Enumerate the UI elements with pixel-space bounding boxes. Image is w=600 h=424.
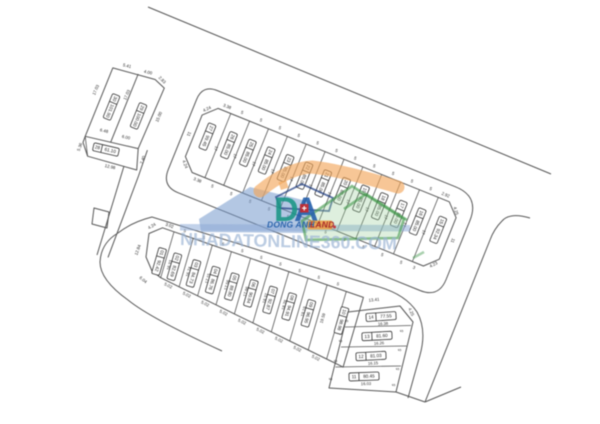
svg-text:15.00: 15.00 bbox=[154, 110, 163, 122]
svg-text:17.03: 17.03 bbox=[91, 83, 100, 95]
svg-text:3.38: 3.38 bbox=[222, 102, 232, 110]
svg-text:19.59: 19.59 bbox=[319, 312, 327, 324]
svg-text:11: 11 bbox=[450, 238, 457, 245]
svg-text:16.03: 16.03 bbox=[361, 381, 372, 386]
svg-text:5.02: 5.02 bbox=[256, 327, 266, 335]
svg-text:4.23: 4.23 bbox=[429, 260, 439, 269]
svg-text:5.02: 5.02 bbox=[237, 318, 247, 326]
svg-text:5: 5 bbox=[410, 178, 415, 184]
svg-text:5.36: 5.36 bbox=[76, 142, 84, 152]
svg-text:5: 5 bbox=[395, 367, 401, 371]
svg-text:5.02: 5.02 bbox=[219, 308, 229, 316]
svg-text:5.02: 5.02 bbox=[182, 290, 192, 298]
svg-text:4.24: 4.24 bbox=[147, 221, 157, 230]
svg-text:5: 5 bbox=[399, 260, 404, 266]
svg-text:4.00: 4.00 bbox=[143, 69, 153, 76]
svg-text:13: 13 bbox=[364, 334, 370, 339]
svg-text:5: 5 bbox=[298, 268, 302, 274]
svg-text:17: 17 bbox=[420, 229, 427, 236]
svg-text:5: 5 bbox=[334, 148, 339, 154]
svg-text:17: 17 bbox=[232, 153, 239, 160]
svg-text:12.84: 12.84 bbox=[133, 243, 142, 255]
svg-text:5: 5 bbox=[317, 275, 321, 281]
svg-text:5.02: 5.02 bbox=[292, 345, 302, 353]
svg-text:5: 5 bbox=[391, 383, 397, 387]
svg-text:80.45: 80.45 bbox=[363, 374, 375, 379]
svg-text:3.38: 3.38 bbox=[193, 176, 203, 184]
svg-text:77.55: 77.55 bbox=[380, 313, 392, 319]
svg-text:5: 5 bbox=[240, 110, 245, 116]
svg-text:DONG ANH: DONG ANH bbox=[267, 220, 315, 230]
svg-text:5.02: 5.02 bbox=[163, 281, 173, 289]
svg-text:NHADATONLINE360.COM: NHADATONLINE360.COM bbox=[180, 229, 397, 254]
svg-text:16.26: 16.26 bbox=[374, 340, 385, 346]
svg-text:5: 5 bbox=[353, 155, 358, 161]
svg-text:5.02: 5.02 bbox=[311, 354, 321, 362]
svg-text:5.02: 5.02 bbox=[200, 299, 210, 307]
svg-text:16.38: 16.38 bbox=[378, 321, 389, 327]
svg-text:14: 14 bbox=[368, 314, 374, 319]
svg-text:16.15: 16.15 bbox=[368, 360, 379, 366]
svg-text:81.60: 81.60 bbox=[376, 333, 388, 339]
svg-text:6.48: 6.48 bbox=[99, 127, 109, 134]
svg-text:LAND: LAND bbox=[310, 220, 334, 230]
svg-text:6.00: 6.00 bbox=[121, 134, 131, 141]
svg-text:17: 17 bbox=[213, 145, 220, 152]
svg-text:5: 5 bbox=[210, 183, 215, 189]
svg-text:5: 5 bbox=[316, 140, 321, 146]
svg-text:5: 5 bbox=[279, 261, 283, 267]
svg-text:5.41: 5.41 bbox=[122, 62, 132, 69]
svg-text:6.04: 6.04 bbox=[138, 275, 148, 285]
svg-text:5: 5 bbox=[259, 117, 264, 123]
svg-text:11: 11 bbox=[186, 131, 193, 138]
svg-text:5: 5 bbox=[372, 163, 377, 169]
svg-text:5: 5 bbox=[278, 125, 283, 131]
svg-text:11: 11 bbox=[352, 374, 357, 379]
svg-text:81.03: 81.03 bbox=[370, 353, 382, 359]
svg-text:13.41: 13.41 bbox=[368, 297, 380, 303]
svg-text:12: 12 bbox=[358, 354, 364, 359]
svg-text:5: 5 bbox=[429, 186, 434, 192]
svg-text:5: 5 bbox=[229, 191, 234, 197]
svg-text:5: 5 bbox=[336, 281, 340, 287]
svg-text:5: 5 bbox=[328, 377, 334, 381]
svg-text:4.24: 4.24 bbox=[181, 159, 189, 169]
svg-text:5: 5 bbox=[297, 133, 302, 139]
svg-text:5: 5 bbox=[391, 171, 396, 177]
svg-text:5: 5 bbox=[397, 348, 403, 352]
svg-text:2.92: 2.92 bbox=[441, 191, 451, 199]
svg-text:17: 17 bbox=[251, 161, 258, 168]
svg-text:5.02: 5.02 bbox=[274, 336, 284, 344]
svg-text:3: 3 bbox=[412, 265, 417, 271]
svg-text:5: 5 bbox=[259, 255, 263, 261]
svg-text:5: 5 bbox=[399, 329, 405, 333]
